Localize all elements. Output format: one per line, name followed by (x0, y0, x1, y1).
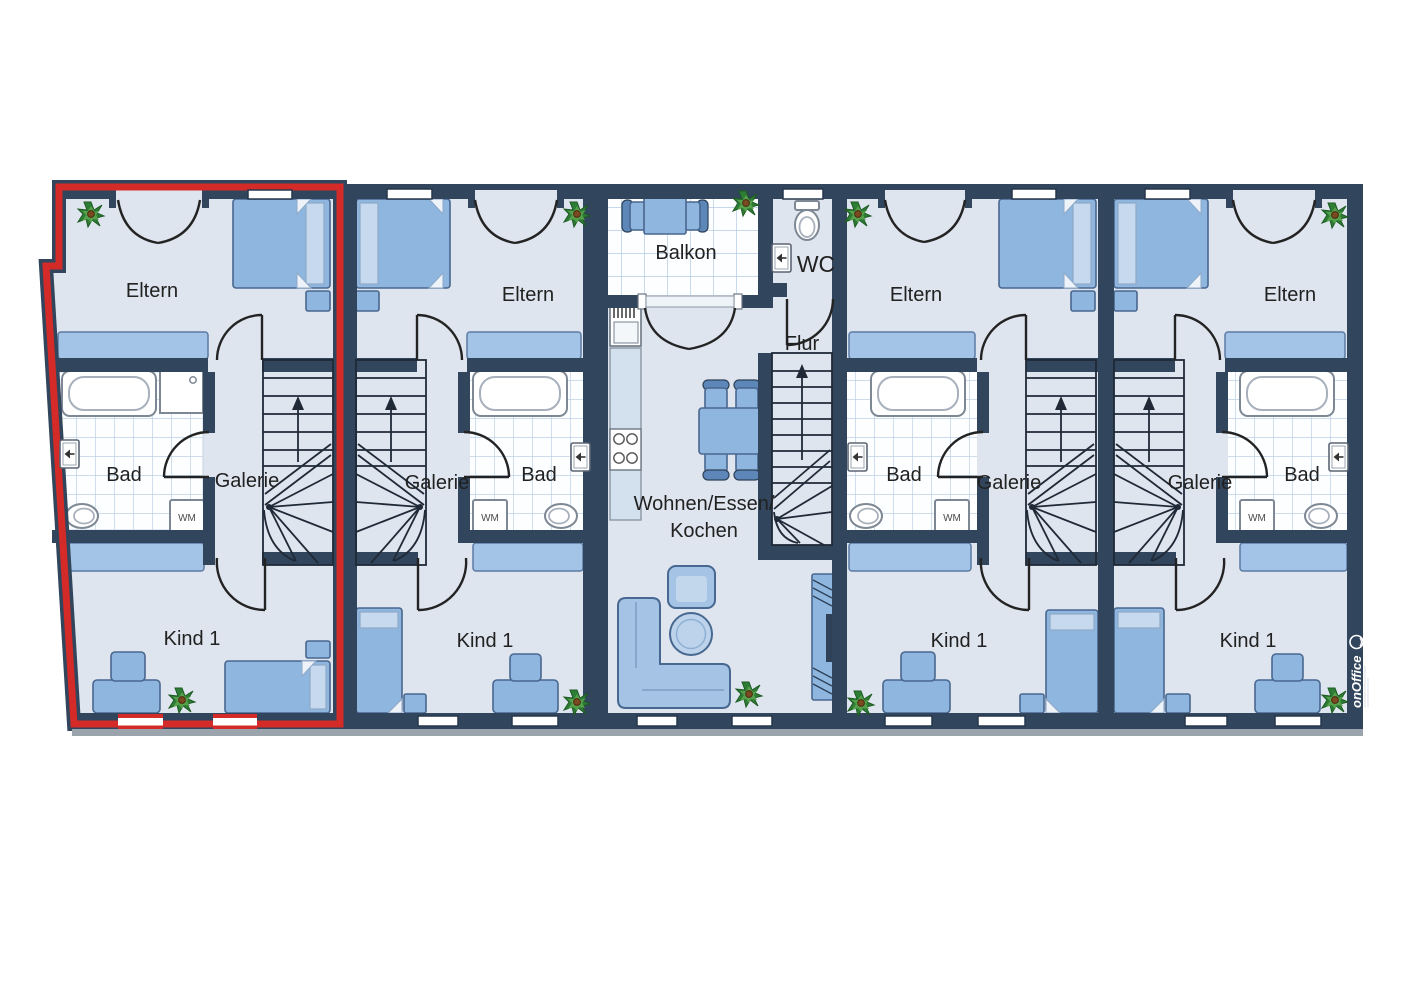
room-label-wc: WC (797, 251, 835, 277)
room-label-balkon: Balkon (655, 242, 716, 264)
room-label-bad: Bad (886, 464, 922, 486)
nightstand (1166, 694, 1190, 713)
desk-chair (111, 652, 145, 681)
nightstand (1071, 291, 1095, 311)
wardrobe (849, 543, 971, 571)
balcony-threshold (646, 296, 734, 307)
tv-screen (826, 614, 833, 662)
wardrobe (849, 332, 975, 359)
washing-machine-label: WM (1248, 513, 1266, 524)
building-shadow (72, 729, 1363, 736)
wardrobe (64, 543, 204, 571)
room-label-eltern: Eltern (502, 284, 554, 306)
bed-pillow (1118, 612, 1160, 628)
dining-chair (734, 470, 760, 480)
nightstand (306, 641, 330, 658)
room-label-kind1: Kind 1 (457, 630, 514, 652)
dining-chair (705, 388, 727, 410)
toilet-tank (795, 201, 819, 210)
washing-machine-label: WM (178, 513, 196, 524)
bathtub (871, 371, 965, 416)
room-label-bad: Bad (521, 464, 557, 486)
wardrobe (1225, 332, 1345, 359)
room-label-kind1: Kind 1 (164, 628, 221, 650)
bed-pillow (1073, 203, 1091, 284)
room-label-galerie: Galerie (215, 470, 279, 492)
bed-pillow (1050, 614, 1094, 630)
wardrobe (473, 543, 583, 571)
roof-window-icon (1329, 443, 1348, 471)
dining-table (699, 408, 763, 454)
desk (93, 680, 160, 713)
room-label-galerie: Galerie (1168, 472, 1232, 494)
room-label-bad: Bad (106, 464, 142, 486)
room-label-flur: Flur (785, 333, 820, 355)
bathtub (1240, 371, 1334, 416)
washing-machine-label: WM (943, 513, 961, 524)
bathtub (473, 371, 567, 416)
wardrobe (1240, 543, 1347, 571)
washing-machine-label: WM (481, 513, 499, 524)
wardrobe (58, 332, 208, 359)
desk (883, 680, 950, 713)
room-label-galerie: Galerie (405, 472, 469, 494)
dining-chair (703, 470, 729, 480)
room-label-kind1: Kind 1 (931, 630, 988, 652)
roof-window-icon (60, 440, 79, 468)
wardrobe (467, 332, 581, 359)
roof-window-icon (772, 244, 791, 272)
roof-window-icon (848, 443, 867, 471)
shower (160, 371, 203, 413)
room-label-wohnen-line1: Wohnen/Essen/ (634, 493, 775, 515)
room-label-wohnen-line2: Kochen (670, 520, 738, 542)
nightstand (1114, 291, 1137, 311)
room-label-eltern: Eltern (1264, 284, 1316, 306)
bed-pillow (360, 203, 378, 284)
watermark-brand: onOffice (1349, 656, 1364, 709)
roof-window-icon (571, 443, 590, 471)
desk-chair (1272, 654, 1303, 681)
room-label-kind1: Kind 1 (1220, 630, 1277, 652)
oven (614, 322, 638, 343)
party-wall (1098, 184, 1114, 729)
floor-plan: Eltern Bad Galerie Kind 1 Eltern Galerie… (0, 0, 1416, 1000)
bed-pillow (1118, 203, 1136, 284)
desk-chair (901, 652, 935, 681)
balcony-table (644, 197, 686, 234)
room-label-bad: Bad (1284, 464, 1320, 486)
bed-pillow (360, 612, 398, 628)
nightstand (1020, 694, 1044, 713)
dining-chair (736, 388, 758, 410)
toilet (795, 210, 819, 240)
armchair-seat (676, 576, 707, 602)
room-label-eltern: Eltern (890, 284, 942, 306)
bathtub (62, 371, 156, 416)
desk (1255, 680, 1320, 713)
bed-pillow (310, 665, 326, 709)
desk-chair (510, 654, 541, 681)
nightstand (404, 694, 426, 713)
nightstand (356, 291, 379, 311)
nightstand (306, 291, 330, 311)
room-label-galerie: Galerie (977, 472, 1041, 494)
room-label-eltern: Eltern (126, 280, 178, 302)
desk (493, 680, 558, 713)
bed-pillow (306, 203, 324, 284)
